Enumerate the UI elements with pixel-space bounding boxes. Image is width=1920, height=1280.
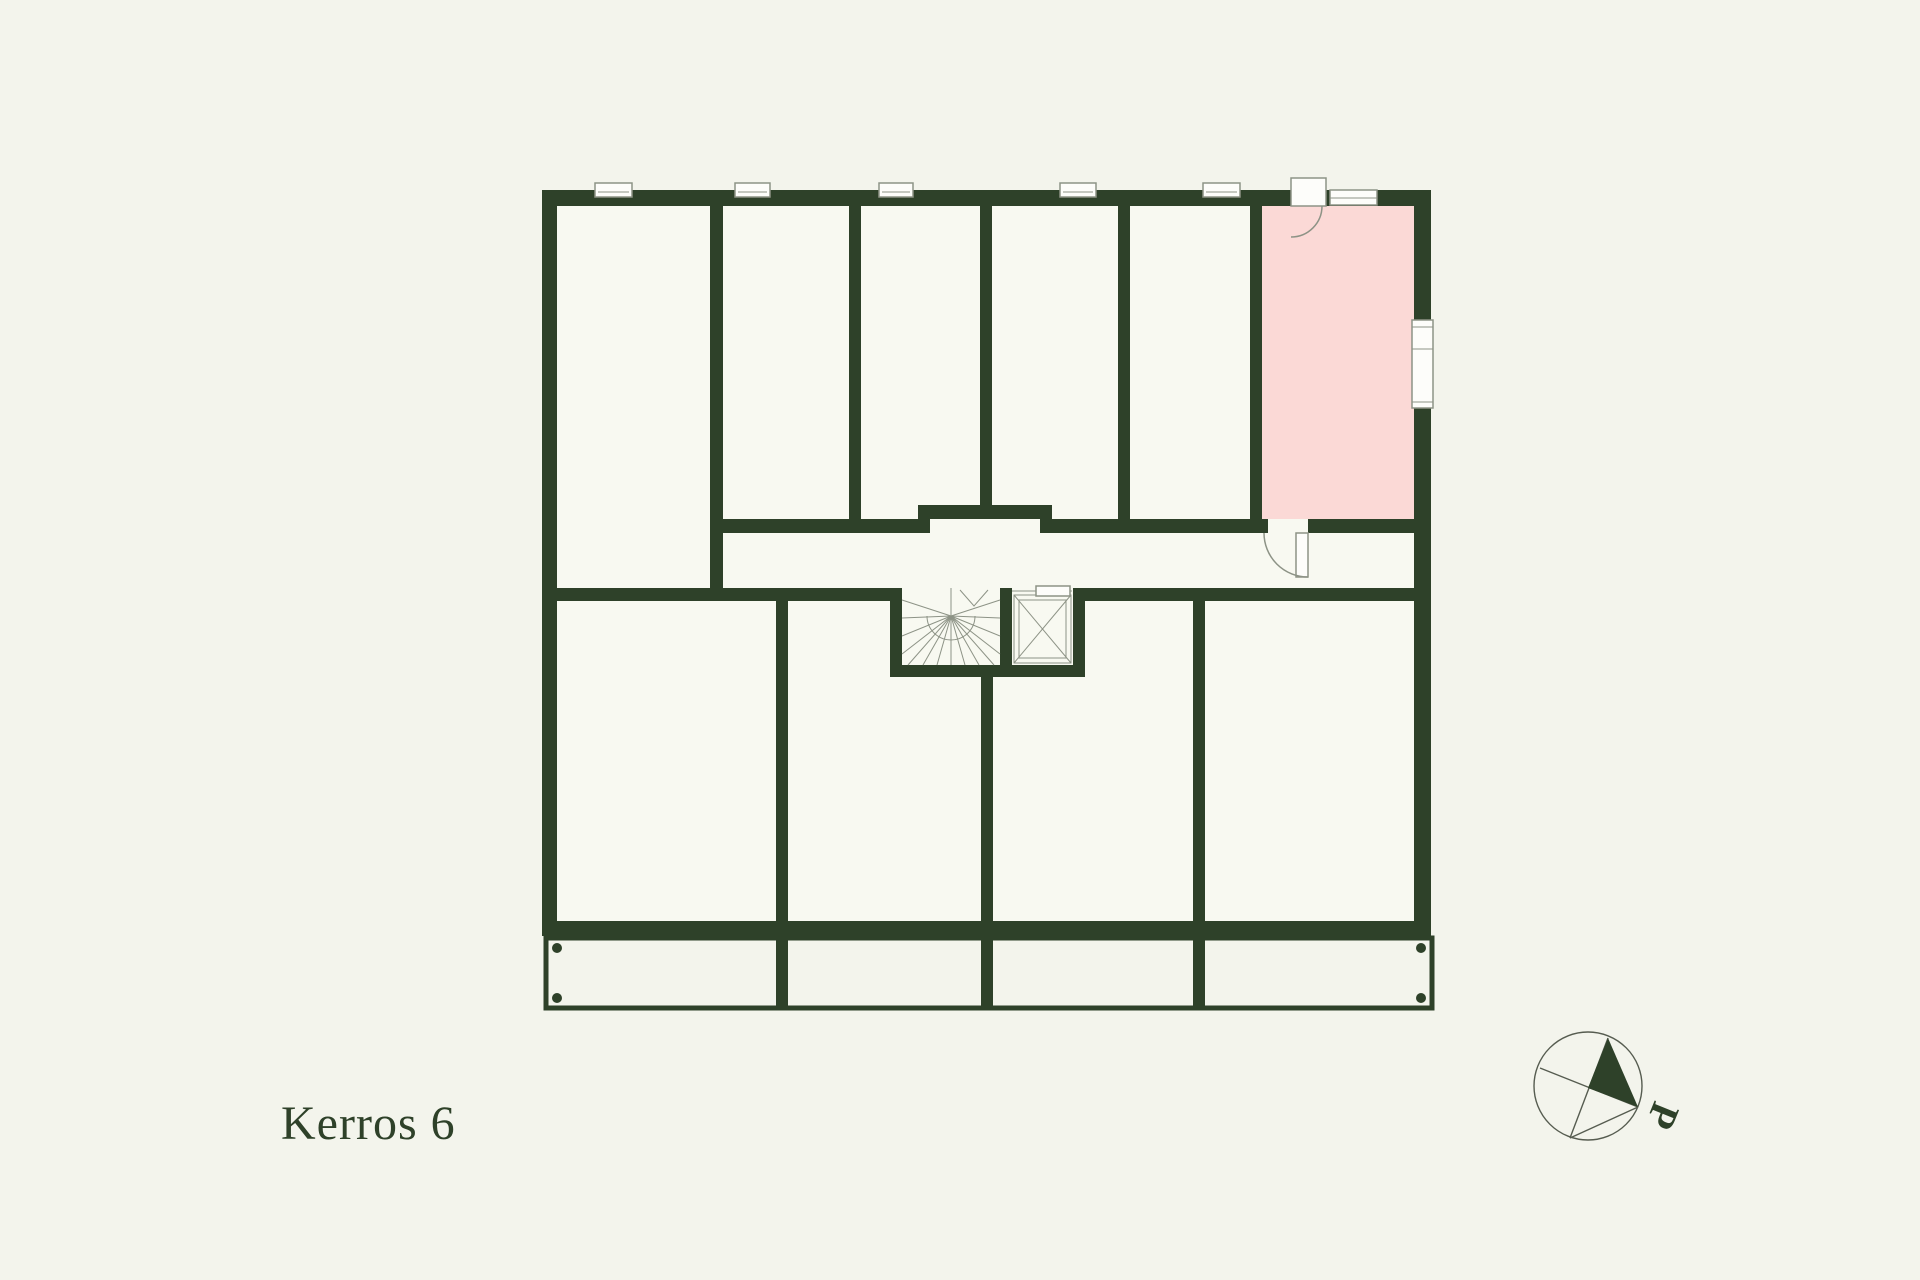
partition-wall (981, 677, 993, 921)
exterior-wall-left (542, 190, 557, 936)
floor-plan-page: P Kerros 6 (0, 0, 1920, 1280)
balcony-column (552, 993, 562, 1003)
stairwell-wall (1073, 588, 1085, 677)
corridor-wall (542, 588, 890, 601)
compass-north-needle (1588, 1038, 1638, 1107)
partition-wall (980, 206, 992, 505)
corridor-wall (1052, 519, 1268, 533)
floor-plan-drawing: P (0, 0, 1920, 1280)
balcony-column (552, 943, 562, 953)
window-icon (879, 183, 913, 197)
compass-north-label: P (1638, 1096, 1689, 1136)
window-icon (1330, 190, 1377, 205)
corridor-wall (710, 519, 930, 533)
window-icon (595, 183, 632, 197)
partition-wall (1118, 206, 1130, 519)
corridor-wall (1308, 519, 1414, 533)
partition-wall (849, 206, 861, 519)
exterior-wall-right (1414, 190, 1431, 936)
balcony-divider (1193, 936, 1205, 1009)
floor-title: Kerros 6 (281, 1096, 456, 1151)
window-icon (1412, 320, 1433, 408)
exterior-wall-bottom (542, 921, 1431, 936)
stairwell-wall (890, 588, 902, 677)
balcony-column (1416, 943, 1426, 953)
partition-wall (776, 601, 788, 921)
partition-wall (1250, 206, 1262, 519)
partition-wall (1193, 601, 1205, 921)
compass-icon: P (1534, 1032, 1688, 1140)
balcony-divider (981, 936, 993, 1009)
stairwell-wall (1000, 588, 1012, 677)
highlighted-apartment[interactable] (1262, 206, 1414, 519)
window-icon (1060, 183, 1096, 197)
window-icon (1203, 183, 1240, 197)
corridor-wall (918, 505, 1052, 519)
balcony-column (1416, 993, 1426, 1003)
corridor-wall (1085, 588, 1414, 601)
window-icon (735, 183, 770, 197)
stairwell-wall (890, 665, 1085, 677)
corridor-wall (1040, 505, 1052, 533)
balcony-divider (776, 936, 788, 1009)
balconies (546, 936, 1432, 1009)
